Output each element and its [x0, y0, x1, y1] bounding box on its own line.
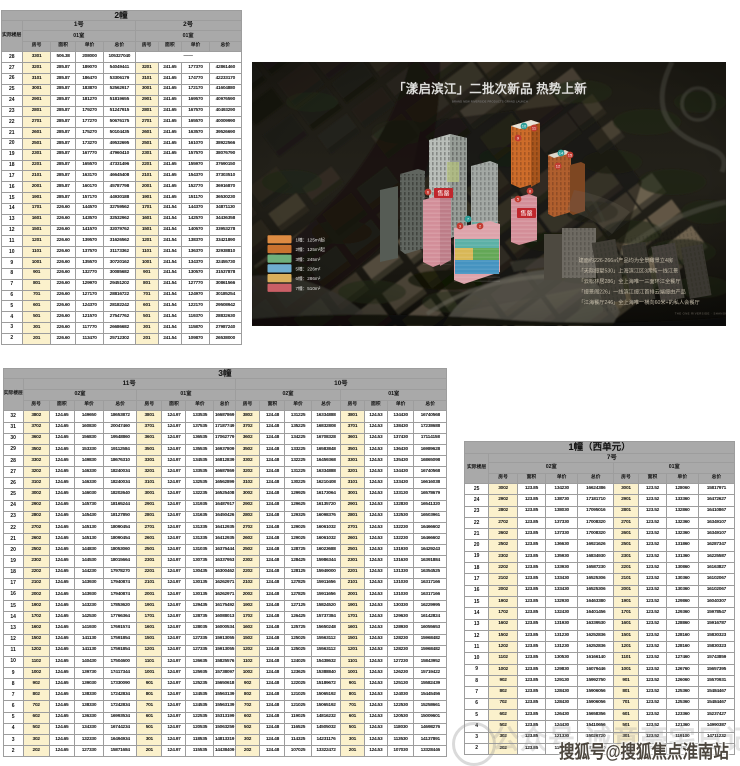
- svg-text:THE ONE RIVERSIDE · SHANGHAI: THE ONE RIVERSIDE · SHANGHAI: [674, 312, 726, 316]
- svg-text:3幢：245m²: 3幢：245m²: [295, 256, 320, 263]
- svg-text:6幢：286m²: 6幢：286m²: [295, 275, 320, 282]
- svg-text:7幢：510m²: 7幢：510m²: [295, 285, 320, 292]
- svg-text:「江海餐厅246」全上海唯一横向60米+的私人会餐厅: 「江海餐厅246」全上海唯一横向60米+的私人会餐厅: [578, 298, 699, 306]
- svg-text:BRAND NEW RIVERSIDE PRODUCTS G: BRAND NEW RIVERSIDE PRODUCTS GRAND LAUNC…: [452, 100, 528, 104]
- svg-text:2幢：125m²起: 2幢：125m²起: [295, 246, 325, 253]
- svg-text:「云松林居286」全上海唯一三面环江全餐厅: 「云松林居286」全上海唯一三面环江全餐厅: [578, 277, 680, 285]
- svg-text:15: 15: [567, 152, 572, 157]
- svg-text:「缦景阁226」一线滨江缦江首排云端缦由产品: 「缦景阁226」一线滨江缦江首排云端缦由产品: [578, 288, 685, 296]
- svg-text:「天际缦墅530」上海滨江区3席纯一线江景: 「天际缦墅530」上海滨江区3席纯一线江景: [578, 267, 678, 275]
- svg-text:5幢：226m²: 5幢：226m²: [295, 266, 320, 273]
- svg-text:12: 12: [555, 163, 560, 168]
- svg-text:售罄: 售罄: [520, 210, 532, 218]
- svg-text:10: 10: [521, 123, 526, 128]
- svg-text:售罄: 售罄: [437, 190, 449, 198]
- svg-text:「漾启滨江」二批次新品 热势上新: 「漾启滨江」二批次新品 热势上新: [393, 81, 587, 96]
- svg-text:14: 14: [558, 150, 563, 155]
- svg-text:1幢：125m²起: 1幢：125m²起: [295, 236, 325, 243]
- svg-text:建面约226-266㎡产品均为全景瞰景立4房: 建面约226-266㎡产品均为全景瞰景立4房: [578, 256, 673, 264]
